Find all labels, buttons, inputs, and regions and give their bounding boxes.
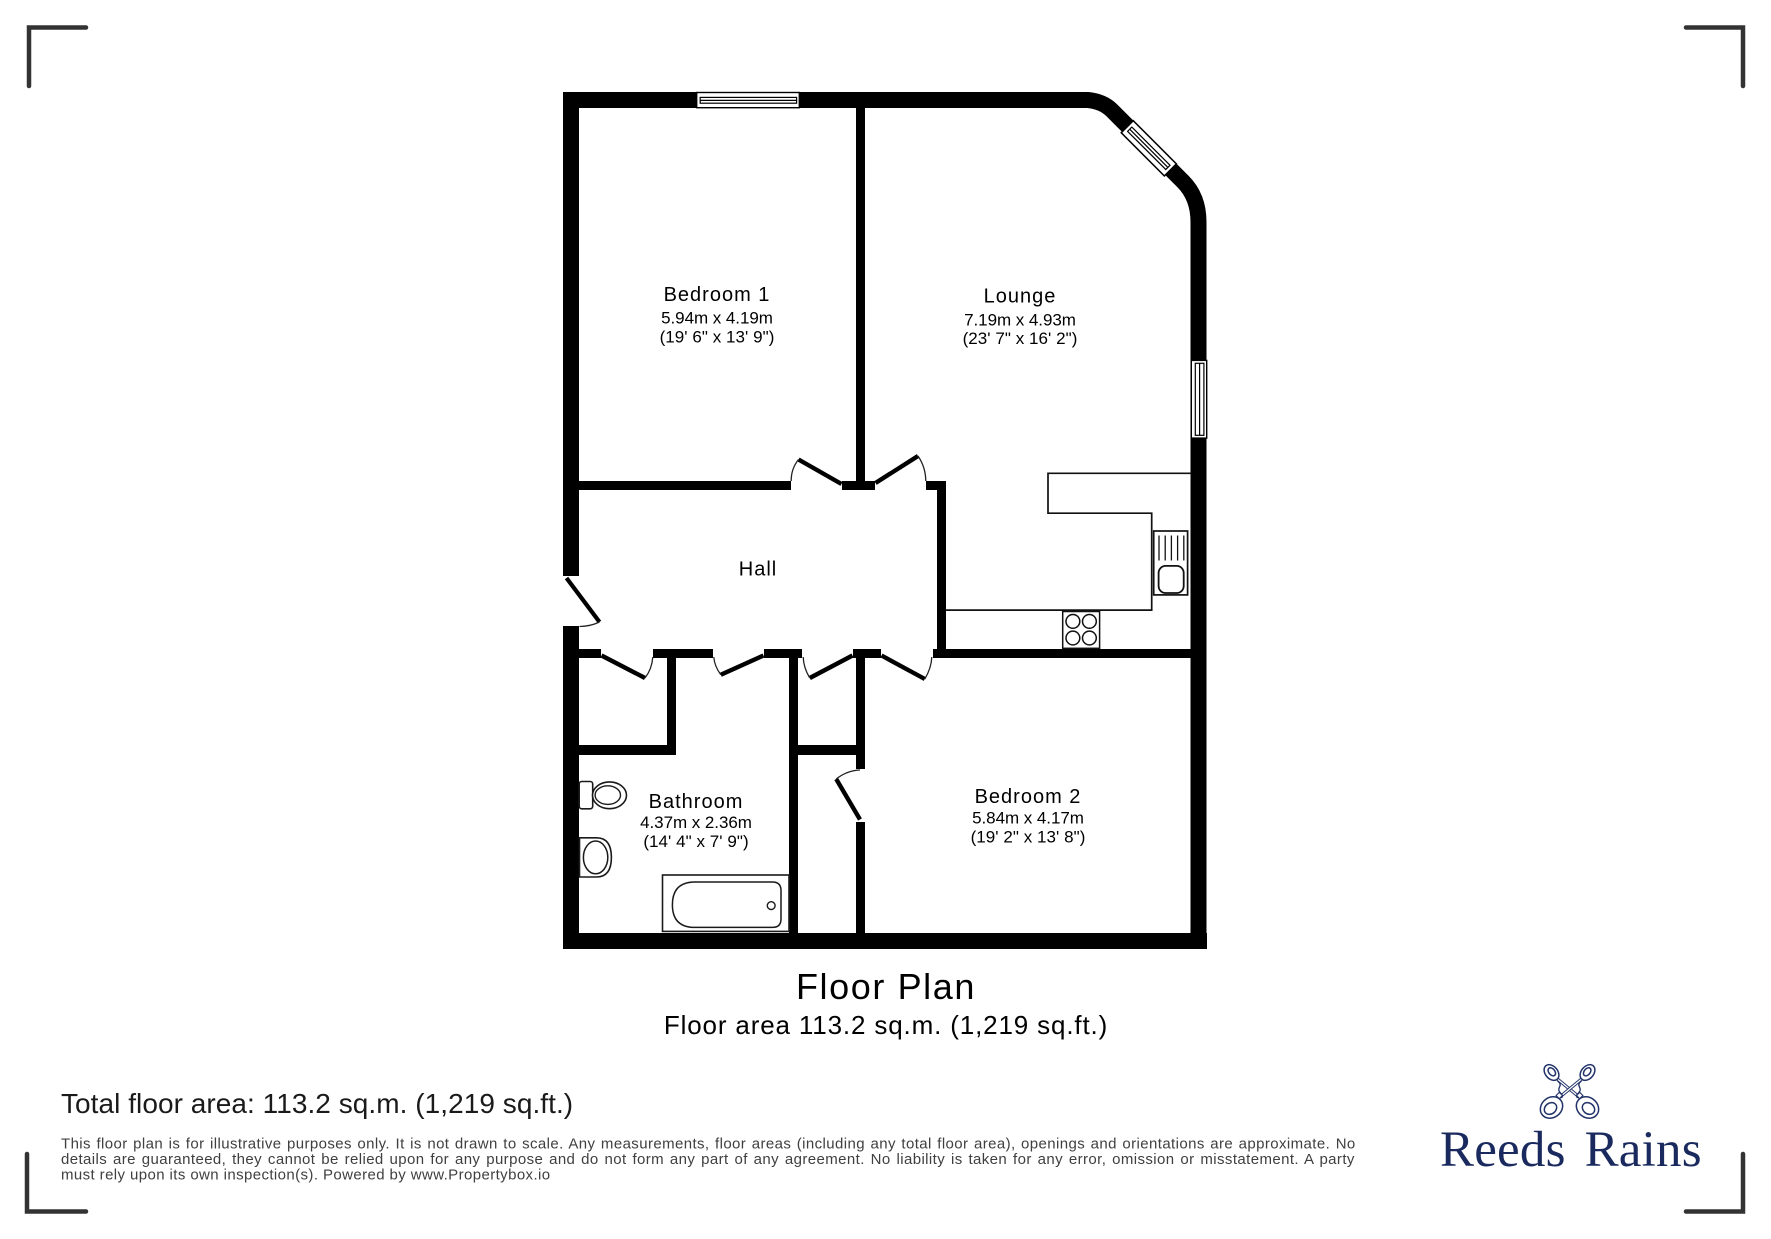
svg-text:(19' 2" x 13' 8"): (19' 2" x 13' 8") <box>971 828 1086 847</box>
svg-text:Reeds Rains: Reeds Rains <box>1440 1122 1702 1178</box>
svg-text:4.37m x 2.36m: 4.37m x 2.36m <box>640 813 752 832</box>
svg-text:Lounge: Lounge <box>984 286 1057 308</box>
svg-text:details are guaranteed, they c: details are guaranteed, they cannot be r… <box>61 1151 1355 1168</box>
svg-text:Bedroom 2: Bedroom 2 <box>975 786 1082 808</box>
svg-text:Floor Plan: Floor Plan <box>796 966 976 1007</box>
svg-text:5.84m x 4.17m: 5.84m x 4.17m <box>972 809 1084 828</box>
svg-text:(19' 6" x 13' 9"): (19' 6" x 13' 9") <box>660 328 775 347</box>
svg-text:(14' 4" x 7' 9"): (14' 4" x 7' 9") <box>643 832 748 851</box>
svg-text:Bedroom 1: Bedroom 1 <box>664 284 771 306</box>
svg-text:Bathroom: Bathroom <box>649 791 744 813</box>
svg-text:7.19m x 4.93m: 7.19m x 4.93m <box>964 311 1076 330</box>
svg-text:5.94m x 4.19m: 5.94m x 4.19m <box>661 309 773 328</box>
svg-text:Floor area 113.2 sq.m. (1,219: Floor area 113.2 sq.m. (1,219 sq.ft.) <box>664 1010 1108 1040</box>
svg-text:must rely upon its own inspect: must rely upon its own inspection(s). Po… <box>61 1167 551 1184</box>
svg-text:This floor plan is for illustr: This floor plan is for illustrative purp… <box>61 1136 1356 1153</box>
svg-text:Hall: Hall <box>739 559 777 581</box>
svg-text:Total floor area: 113.2 sq.m.: Total floor area: 113.2 sq.m. (1,219 sq.… <box>61 1088 573 1119</box>
svg-text:(23' 7" x 16' 2"): (23' 7" x 16' 2") <box>963 329 1078 348</box>
